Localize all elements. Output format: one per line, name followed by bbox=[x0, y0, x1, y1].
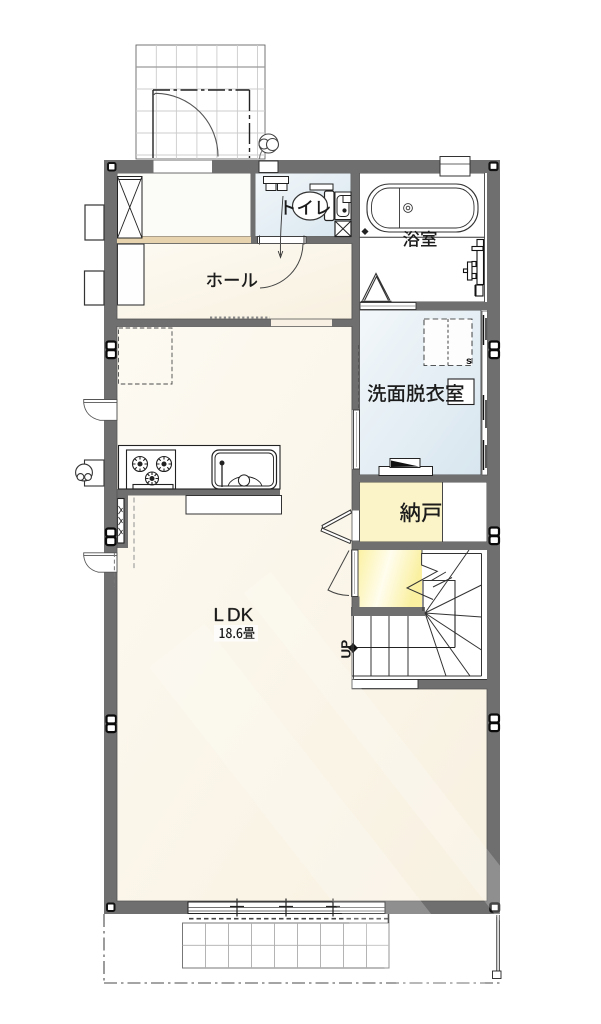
svg-text:s: s bbox=[466, 355, 472, 367]
